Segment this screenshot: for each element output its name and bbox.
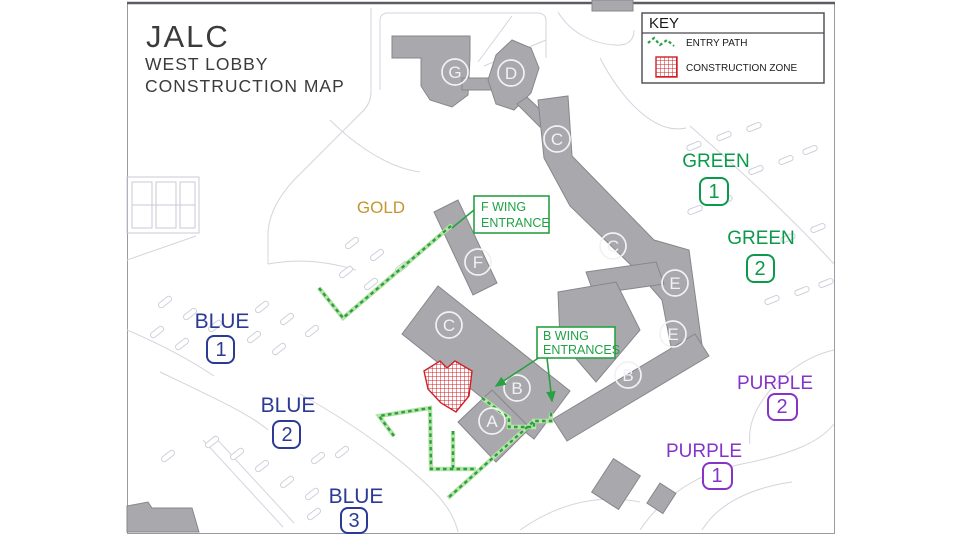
svg-text:2: 2 bbox=[754, 258, 765, 280]
construction-map-page: G D C C F C E E B B A F WING ENTRANCE B … bbox=[0, 0, 960, 540]
svg-text:A: A bbox=[486, 412, 498, 431]
svg-text:1: 1 bbox=[711, 465, 722, 487]
svg-text:BLUE: BLUE bbox=[261, 394, 316, 417]
svg-text:1: 1 bbox=[215, 339, 226, 361]
svg-text:F: F bbox=[473, 253, 483, 272]
svg-text:C: C bbox=[551, 130, 563, 149]
title-line-1: JALC bbox=[146, 19, 230, 54]
svg-text:GREEN: GREEN bbox=[682, 151, 750, 172]
svg-text:E: E bbox=[669, 274, 680, 293]
svg-text:3: 3 bbox=[348, 510, 359, 532]
svg-text:D: D bbox=[505, 64, 517, 83]
parking-label-gold: GOLD bbox=[357, 198, 405, 217]
key-title: KEY bbox=[649, 15, 679, 32]
svg-text:PURPLE: PURPLE bbox=[737, 373, 813, 394]
map-key: KEY ENTRY PATH CONSTRUCTION ZONE bbox=[642, 13, 824, 83]
campus-map: G D C C F C E E B B A F WING ENTRANCE B … bbox=[0, 0, 960, 540]
svg-text:B: B bbox=[511, 379, 522, 398]
svg-text:C: C bbox=[443, 316, 455, 335]
key-construction-zone-label: CONSTRUCTION ZONE bbox=[686, 63, 797, 74]
svg-text:2: 2 bbox=[776, 396, 787, 418]
svg-text:GREEN: GREEN bbox=[727, 228, 795, 249]
svg-text:E: E bbox=[667, 325, 678, 344]
parking-name: GOLD bbox=[357, 198, 405, 217]
svg-text:BLUE: BLUE bbox=[329, 485, 384, 508]
title-line-3: CONSTRUCTION MAP bbox=[145, 76, 345, 96]
key-entry-path-label: ENTRY PATH bbox=[686, 38, 748, 49]
svg-text:C: C bbox=[607, 237, 619, 256]
svg-text:F WING: F WING bbox=[481, 200, 526, 214]
svg-text:BLUE: BLUE bbox=[195, 310, 250, 333]
svg-text:2: 2 bbox=[281, 424, 292, 446]
small-building-north bbox=[592, 0, 633, 11]
svg-text:B: B bbox=[622, 366, 633, 385]
svg-text:1: 1 bbox=[708, 181, 719, 203]
svg-text:PURPLE: PURPLE bbox=[666, 441, 742, 462]
construction-zone-legend-icon bbox=[656, 57, 677, 77]
svg-text:G: G bbox=[448, 63, 461, 82]
title-line-2: WEST LOBBY bbox=[145, 54, 268, 74]
svg-text:ENTRANCE: ENTRANCE bbox=[481, 216, 550, 230]
svg-text:ENTRANCES: ENTRANCES bbox=[543, 343, 620, 357]
svg-text:B WING: B WING bbox=[543, 329, 589, 343]
